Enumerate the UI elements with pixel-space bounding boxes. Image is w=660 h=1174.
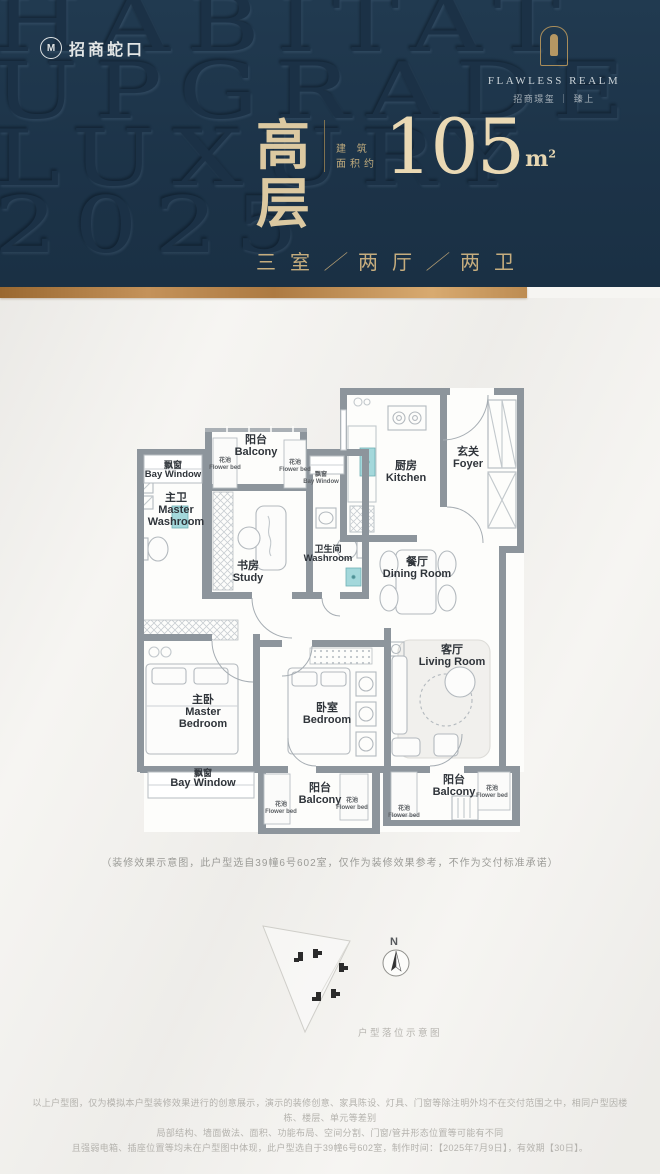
room-label-living: 客厅 Living Room [419, 644, 486, 668]
brand-name-en: FLAWLESS REALM [474, 75, 634, 87]
disclaimer-line-2: 局部结构、墙面做法、面积、功能布局、空间分割、门窗/管井形态位置等可能有不同 [25, 1126, 635, 1141]
header-banner: HABITAT UPGRADE LUXURY 2025 M 招商蛇口 FLAWL… [0, 0, 660, 287]
room-label-bedroom: 卧室 Bedroom [303, 702, 351, 726]
room-label-bay-window-left: 飘窗 Bay Window [145, 460, 201, 480]
cmsk-logo: M 招商蛇口 [40, 36, 145, 60]
room-label-study: 书房 Study [233, 560, 264, 584]
room-label-foyer: 玄关 Foyer [453, 446, 483, 470]
spec-baths: 两卫 [460, 252, 528, 274]
cmsk-logo-icon: M [40, 37, 62, 59]
label-flower-bed-bottom-right: 花池 Flower bed [476, 786, 508, 800]
site-boundary [263, 926, 350, 1032]
layout-spec: 三室／两厅／两卫 [256, 246, 556, 275]
compass-north-label: N [390, 936, 398, 948]
product-type-title: 高层 [256, 116, 313, 232]
room-label-balcony-bottom: 阳台 Balcony [299, 782, 342, 806]
room-label-kitchen: 厨房 Kitchen [386, 460, 426, 484]
label-flower-bed-bottom-mid2: 花池 Flower bed [388, 806, 420, 820]
area-prefix-line2: 面积约 [336, 157, 378, 172]
disclaimer: 以上户型图，仅为模拟本户型装修效果进行的创意展示，演示的装修创意、家具陈设、灯具… [25, 1096, 635, 1156]
room-label-master-bedroom: 主卧 Master Bedroom [170, 694, 236, 730]
disclaimer-line-3: 且强弱电箱、插座位置等均未在户型图中体现，此户型选自于39幢6号602室，制作时… [25, 1141, 635, 1156]
flawless-realm-emblem-icon [540, 26, 568, 66]
room-label-bay-window-bottom: 飘窗 Bay Window [170, 768, 235, 788]
area-value: 105 [384, 116, 523, 178]
disclaimer-line-1: 以上户型图，仅为模拟本户型装修效果进行的创意展示，演示的装修创意、家具陈设、灯具… [25, 1096, 635, 1126]
area-unit: m2 [525, 146, 556, 172]
spec-rooms: 三室 [256, 252, 324, 274]
spec-slash: ／ [324, 252, 358, 274]
title-divider [324, 120, 325, 172]
title-block: 高层 建 筑 面积约 105 m2 三室／两厅／两卫 [256, 116, 556, 275]
site-plan-caption: 户型落位示意图 [358, 1025, 442, 1039]
room-label-master-washroom: 主卫 Master Washroom [143, 492, 209, 528]
label-flower-bed-top-left: 花池 Flower bed [209, 458, 241, 472]
label-flower-bed-bottom-mid: 花池 Flower bed [336, 798, 368, 812]
room-label-balcony-top: 阳台 Balcony [235, 434, 278, 458]
room-label-dining: 餐厅 Dining Room [383, 556, 451, 580]
cmsk-logo-text: 招商蛇口 [69, 36, 145, 60]
gold-accent-bar [0, 287, 527, 298]
spec-halls: 两厅 [358, 252, 426, 274]
project-brand: FLAWLESS REALM 招商璟玺 ｜ 臻上 [474, 26, 634, 105]
area-prefix-line1: 建 筑 [336, 142, 378, 157]
room-label-washroom: 卫生间 Washroom [304, 544, 353, 564]
compass-icon [383, 950, 409, 976]
plan-caption: （装修效果示意图，此户型选自39幢6号602室，仅作为装修效果参考，不作为交付标… [0, 854, 660, 869]
spec-slash: ／ [426, 252, 460, 274]
title-row: 高层 建 筑 面积约 105 m2 [256, 116, 556, 232]
area-prefix: 建 筑 面积约 [336, 116, 378, 174]
room-label-bay-window-small: 飘窗 Bay Window [303, 472, 339, 486]
label-flower-bed-bottom-left: 花池 Flower bed [265, 802, 297, 816]
room-label-balcony-right: 阳台 Balcony [433, 774, 476, 798]
